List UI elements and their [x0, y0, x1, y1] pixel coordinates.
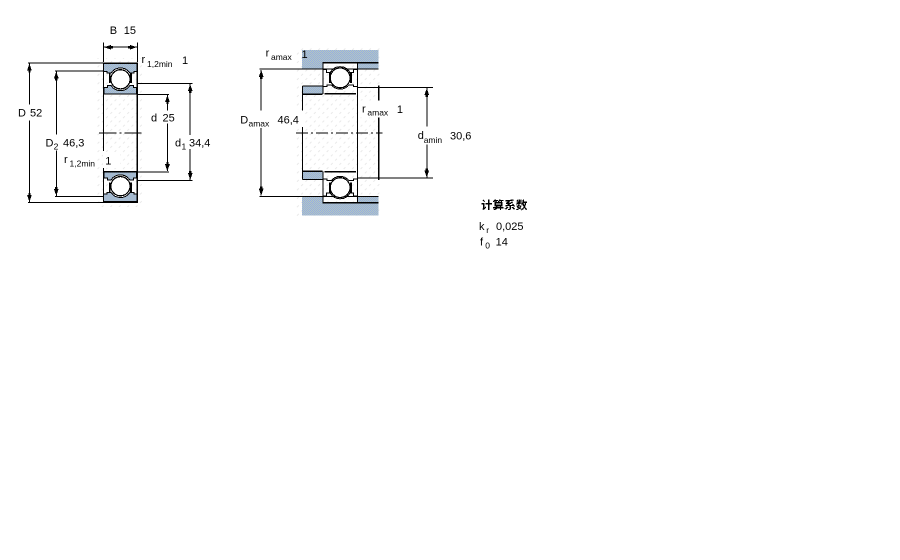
svg-text:D: D: [18, 108, 26, 120]
svg-text:amin: amin: [424, 135, 443, 145]
svg-text:34,4: 34,4: [189, 137, 210, 149]
svg-text:2: 2: [54, 141, 59, 151]
svg-text:1: 1: [105, 155, 111, 167]
svg-text:52: 52: [30, 108, 42, 120]
svg-text:1: 1: [182, 141, 187, 151]
svg-text:15: 15: [124, 25, 136, 37]
svg-text:D: D: [240, 114, 248, 126]
svg-text:k: k: [479, 221, 485, 233]
svg-text:r: r: [486, 225, 489, 235]
svg-text:r: r: [64, 154, 68, 166]
svg-text:amax: amax: [271, 52, 293, 62]
svg-text:1: 1: [302, 49, 308, 61]
svg-text:D: D: [46, 137, 54, 149]
svg-text:1,2min: 1,2min: [70, 159, 96, 169]
svg-text:d: d: [175, 137, 181, 149]
svg-text:1: 1: [397, 104, 403, 116]
svg-text:f: f: [480, 237, 484, 249]
svg-text:46,4: 46,4: [278, 114, 299, 126]
svg-text:1: 1: [182, 55, 188, 67]
svg-text:r: r: [142, 54, 146, 66]
svg-text:30,6: 30,6: [450, 131, 471, 143]
svg-text:14: 14: [496, 237, 508, 249]
svg-text:1,2min: 1,2min: [147, 59, 173, 69]
svg-text:amax: amax: [367, 108, 389, 118]
svg-text:46,3: 46,3: [63, 137, 84, 149]
svg-text:25: 25: [163, 113, 175, 125]
svg-text:0,025: 0,025: [496, 221, 524, 233]
svg-text:r: r: [362, 103, 366, 115]
svg-text:0: 0: [485, 241, 490, 251]
svg-text:r: r: [266, 48, 270, 60]
svg-text:d: d: [151, 113, 157, 125]
svg-text:amax: amax: [249, 118, 271, 128]
svg-text:B: B: [110, 25, 117, 37]
